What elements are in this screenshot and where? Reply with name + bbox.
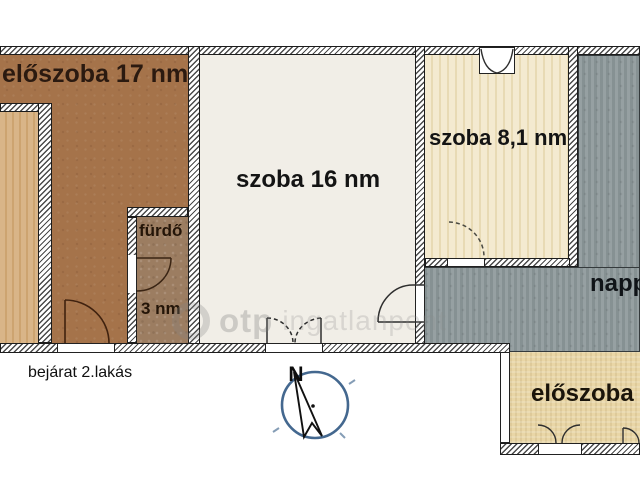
compass: N <box>273 363 355 438</box>
furdo-door-swing <box>137 258 171 291</box>
compass-north-label: N <box>288 363 303 386</box>
szoba16-nappali-door-swing <box>378 285 425 322</box>
szoba16-double-door-swing <box>267 318 321 343</box>
floorplan: előszoba 17 nm szoba 16 nm szoba 8,1 nm … <box>0 0 640 480</box>
hall2-double-door-swing <box>538 425 580 443</box>
plan-symbols-layer: N <box>0 0 640 480</box>
compass-center-dot <box>311 404 315 408</box>
szoba81-window-glyph <box>481 49 513 73</box>
entrance-door-swing <box>65 300 109 343</box>
hall2-right-door-swing <box>623 428 639 443</box>
szoba81-door-swing <box>449 222 484 257</box>
